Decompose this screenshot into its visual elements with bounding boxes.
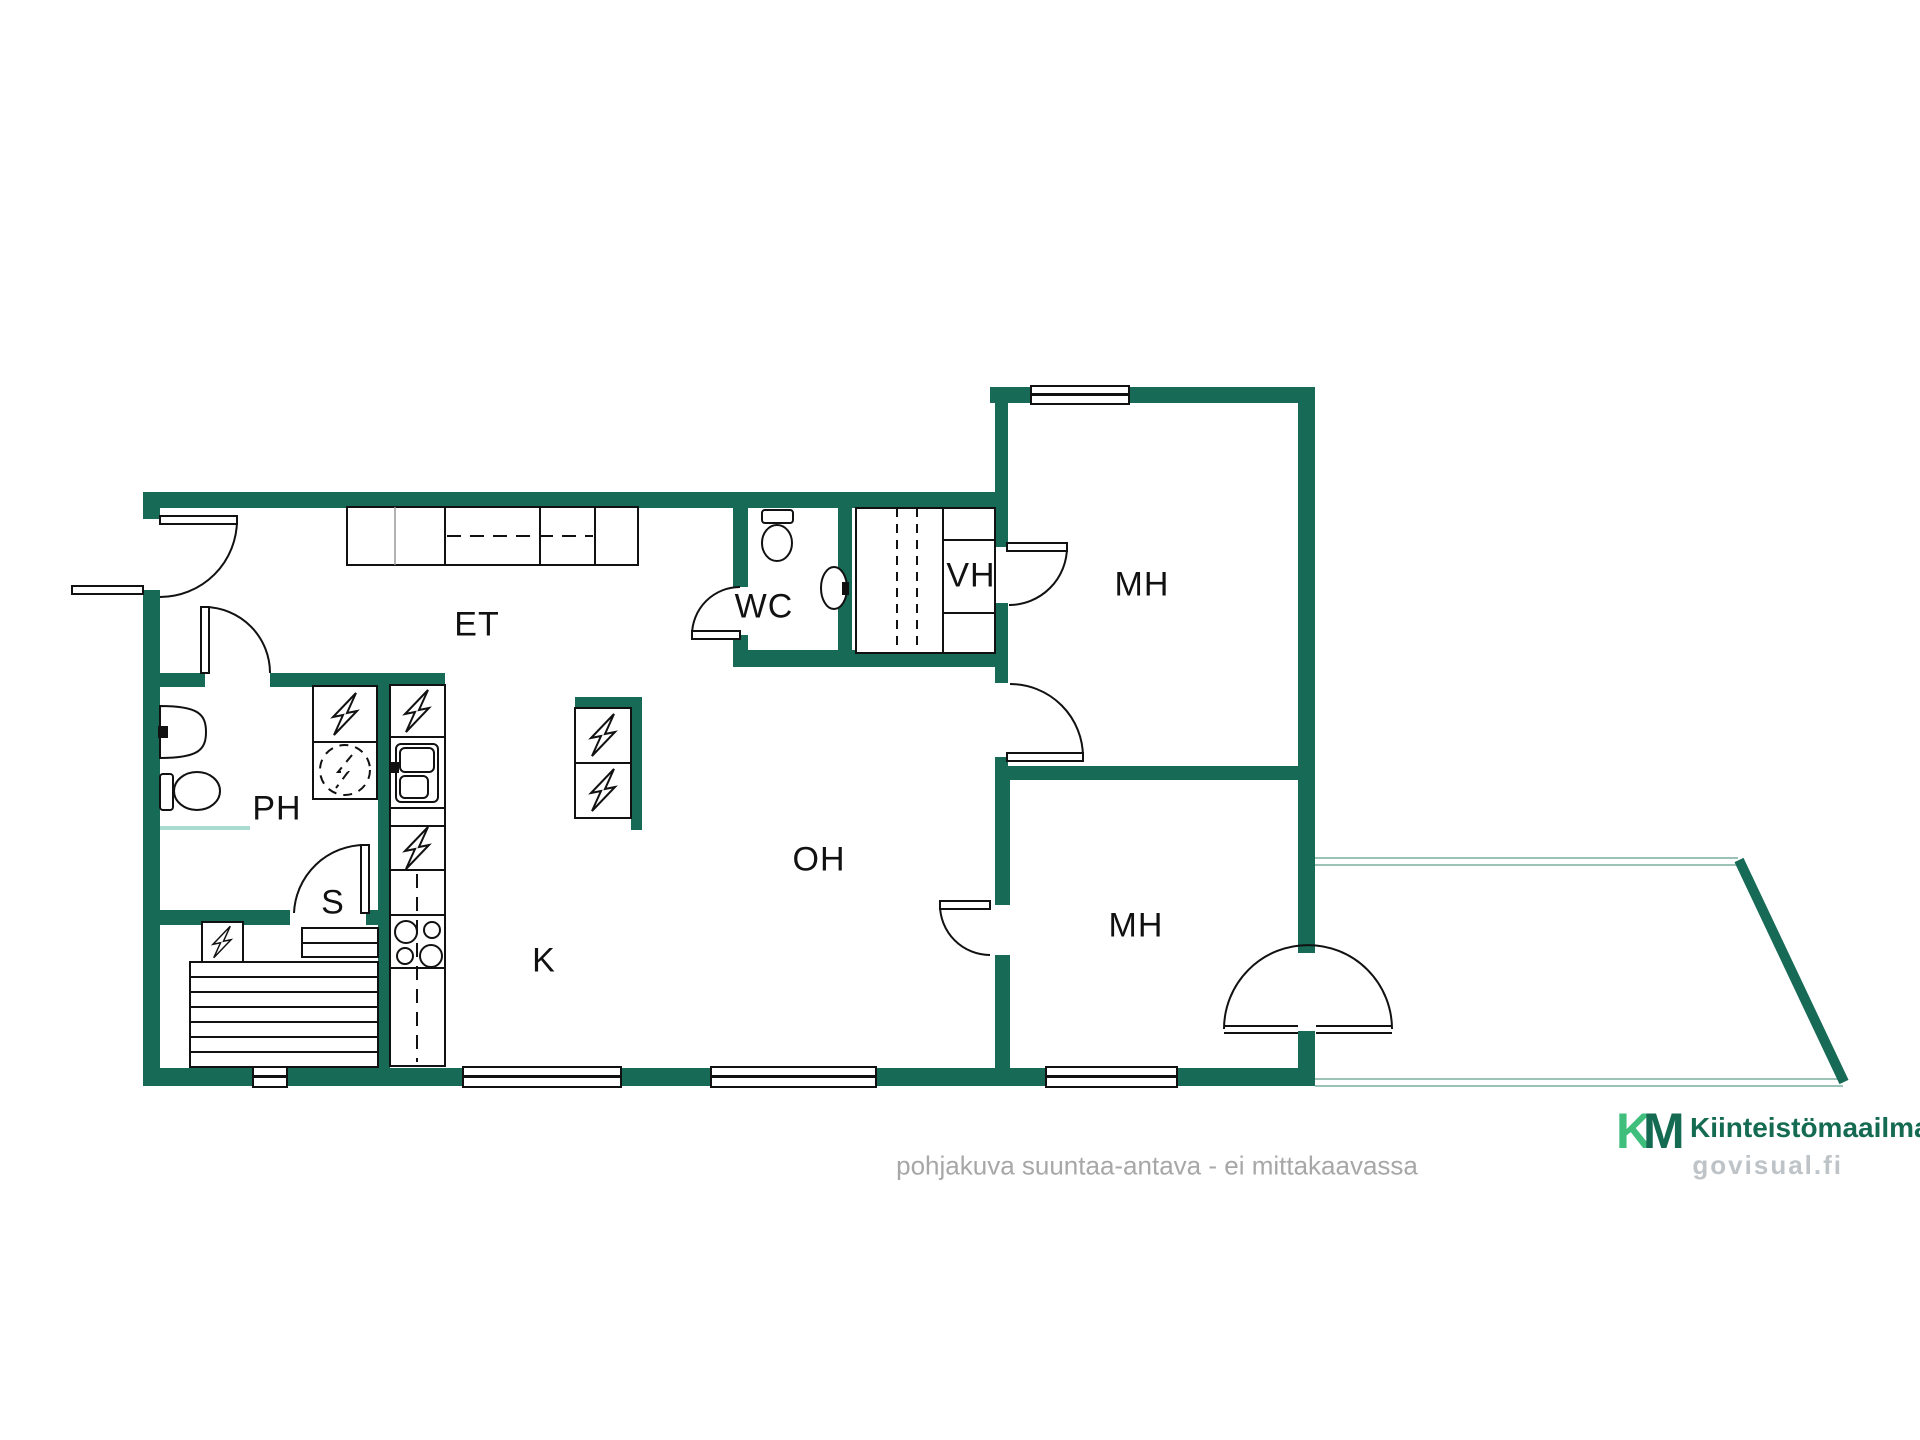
bedroom2-door-icon bbox=[940, 901, 990, 955]
entrance-door-icon bbox=[72, 516, 237, 597]
room-label-ph: PH bbox=[252, 790, 301, 829]
vh-door-icon bbox=[1007, 543, 1067, 605]
brand-name: Kiinteistömaailma bbox=[1690, 1112, 1920, 1144]
wc-sink-icon bbox=[821, 567, 849, 609]
disclaimer-text: pohjakuva suuntaa-antava - ei mittakaava… bbox=[896, 1151, 1418, 1182]
terrace-outline bbox=[1315, 858, 1844, 1086]
room-label-k: K bbox=[532, 942, 556, 981]
ph-toilet-icon bbox=[160, 772, 220, 810]
brand-site-url: govisual.fi bbox=[1692, 1150, 1843, 1181]
room-label-wc: WC bbox=[735, 588, 794, 627]
island-appliances-icon bbox=[575, 708, 631, 818]
room-label-oh: OH bbox=[793, 841, 846, 880]
room-label-et: ET bbox=[454, 606, 499, 645]
km-logo-m: M bbox=[1643, 1102, 1685, 1160]
room-label-s: S bbox=[321, 884, 345, 923]
plan-linework bbox=[0, 0, 1920, 1440]
patio-door-icon bbox=[1224, 945, 1392, 1033]
kitchen-counter bbox=[390, 685, 445, 1066]
dryer-icon bbox=[313, 742, 377, 799]
ph-door-icon bbox=[201, 607, 270, 673]
hall-closet-icon bbox=[347, 507, 638, 565]
sauna-heater-icon bbox=[202, 922, 243, 962]
wc-toilet-icon bbox=[762, 510, 793, 561]
ph-sink-icon bbox=[158, 706, 206, 758]
room-label-vh: VH bbox=[946, 557, 995, 596]
washing-machine-icon bbox=[313, 686, 377, 742]
room-label-mh2: MH bbox=[1109, 907, 1164, 946]
floor-plan: ET WC VH MH MH PH S K OH K M Kiinteistöm… bbox=[0, 0, 1920, 1440]
room-label-mh1: MH bbox=[1115, 566, 1170, 605]
bedroom1-door-icon bbox=[1007, 684, 1083, 761]
wc-door-icon bbox=[692, 587, 740, 639]
